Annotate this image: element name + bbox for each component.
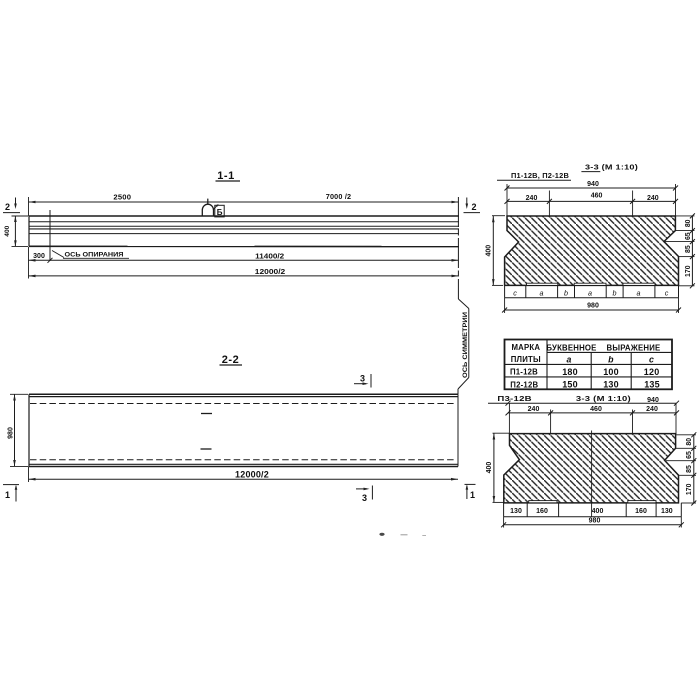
- svg-text:a: a: [637, 288, 641, 297]
- svg-text:180: 180: [562, 367, 578, 377]
- svg-text:1: 1: [5, 490, 10, 500]
- svg-text:400: 400: [486, 462, 493, 474]
- svg-text:240: 240: [646, 406, 658, 413]
- svg-text:a: a: [588, 288, 592, 297]
- svg-text:240: 240: [528, 406, 540, 413]
- svg-text:2-2: 2-2: [222, 354, 239, 366]
- svg-text:3-3 (М 1:10): 3-3 (М 1:10): [576, 394, 631, 403]
- svg-text:1: 1: [470, 490, 475, 500]
- svg-text:170: 170: [685, 265, 692, 277]
- svg-text:130: 130: [510, 508, 522, 515]
- svg-text:ВЫРАЖЕНИЕ: ВЫРАЖЕНИЕ: [607, 343, 661, 352]
- svg-text:МАРКА: МАРКА: [511, 343, 540, 352]
- svg-text:c: c: [649, 354, 654, 364]
- svg-text:130: 130: [603, 379, 619, 389]
- svg-text:b: b: [608, 354, 614, 364]
- svg-text:3: 3: [360, 373, 365, 383]
- svg-text:120: 120: [644, 367, 660, 377]
- svg-text:П1-12В, П2-12В: П1-12В, П2-12В: [511, 171, 569, 180]
- svg-text:160: 160: [536, 508, 548, 515]
- svg-text:940: 940: [647, 397, 659, 404]
- svg-text:3-3 (М 1:10): 3-3 (М 1:10): [585, 162, 638, 171]
- svg-text:400: 400: [486, 245, 493, 257]
- svg-text:300: 300: [33, 253, 45, 260]
- svg-text:80: 80: [686, 438, 693, 446]
- svg-text:11400/2: 11400/2: [255, 253, 284, 260]
- svg-text:980: 980: [589, 517, 601, 524]
- svg-text:460: 460: [590, 406, 602, 413]
- svg-text:c: c: [665, 288, 669, 297]
- svg-text:П1-12В: П1-12В: [510, 368, 538, 377]
- svg-text:ПЛИТЫ: ПЛИТЫ: [511, 355, 541, 364]
- svg-text:2500: 2500: [113, 192, 131, 201]
- svg-text:100: 100: [603, 367, 619, 377]
- svg-text:a: a: [567, 354, 572, 364]
- svg-text:980: 980: [587, 302, 599, 309]
- svg-text:150: 150: [562, 379, 578, 389]
- svg-text:80: 80: [685, 219, 692, 227]
- svg-text:135: 135: [644, 379, 660, 389]
- svg-text:400: 400: [4, 225, 11, 236]
- svg-text:ОСЬ СИММЕТРИИ: ОСЬ СИММЕТРИИ: [462, 312, 469, 378]
- svg-text:400: 400: [592, 508, 604, 515]
- svg-text:П3-12В: П3-12В: [497, 394, 532, 403]
- svg-text:85: 85: [685, 245, 692, 253]
- svg-text:2: 2: [5, 202, 10, 212]
- svg-text:БУКВЕННОЕ: БУКВЕННОЕ: [546, 343, 596, 352]
- svg-text:2: 2: [471, 202, 476, 212]
- svg-text:170: 170: [686, 483, 693, 495]
- svg-text:240: 240: [526, 195, 538, 202]
- svg-text:a: a: [540, 288, 544, 297]
- svg-text:240: 240: [647, 195, 659, 202]
- svg-text:980: 980: [8, 427, 15, 439]
- svg-text:65: 65: [686, 451, 693, 459]
- svg-text:460: 460: [591, 193, 603, 200]
- svg-text:ОСЬ ОПИРАНИЯ: ОСЬ ОПИРАНИЯ: [65, 251, 124, 258]
- svg-text:b: b: [564, 288, 568, 297]
- svg-text:П2-12В: П2-12В: [510, 380, 538, 389]
- svg-text:b: b: [613, 288, 617, 297]
- svg-text:940: 940: [587, 181, 599, 188]
- svg-text:160: 160: [635, 508, 647, 515]
- svg-text:85: 85: [686, 465, 693, 473]
- svg-text:c: c: [513, 288, 517, 297]
- svg-text:130: 130: [661, 508, 673, 515]
- svg-text:3: 3: [362, 493, 367, 503]
- svg-text:7000 /2: 7000 /2: [326, 192, 352, 201]
- svg-text:Б: Б: [217, 208, 223, 217]
- svg-text:65: 65: [685, 232, 692, 240]
- svg-text:12000/2: 12000/2: [255, 269, 286, 276]
- svg-text:12000/2: 12000/2: [235, 469, 269, 479]
